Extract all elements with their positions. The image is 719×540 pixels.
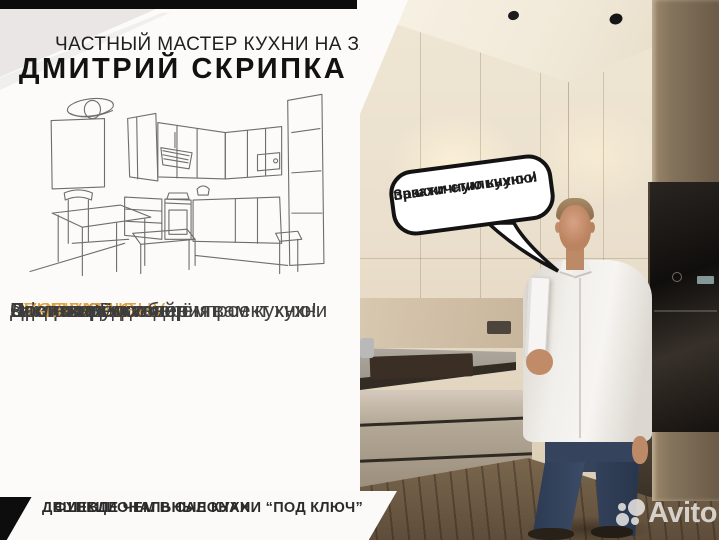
faucet <box>360 338 374 358</box>
avito-wordmark: Avito <box>648 497 717 530</box>
built-in-oven <box>648 182 719 432</box>
kitchen-photo: Закажи стильную и практичную кухню! Avit… <box>360 0 719 540</box>
hand <box>632 436 648 464</box>
kitchen-sketch <box>28 92 335 294</box>
master-name: ДМИТРИЙ СКРИПКА <box>16 53 350 86</box>
footer-line-2: ДЕШЕВЛЕ ЧЕМ В САЛОНАХ <box>42 499 250 518</box>
induction-hob <box>370 353 474 380</box>
top-black-bar <box>0 0 357 9</box>
speech-line: практичную кухню! <box>392 167 538 206</box>
avito-logo-circle <box>616 513 629 526</box>
avito-logo: Avito <box>606 494 719 538</box>
avito-logo-circle <box>618 503 626 511</box>
speech-bubble-tail <box>478 221 564 275</box>
oven-handle <box>654 310 717 312</box>
hand <box>526 349 553 375</box>
shoe <box>528 528 574 540</box>
wall-socket <box>487 321 511 334</box>
speech-bubble-text: Закажи стильную и практичную кухню! <box>392 166 547 186</box>
ad-flyer: ЧАСТНЫЙ МАСТЕР КУХНИ НА ЗАКАЗ ДМИТРИЙ СК… <box>0 0 719 540</box>
cabinet-seam <box>420 28 421 300</box>
oven-display <box>697 276 714 284</box>
oven-dial <box>672 272 682 282</box>
service-text: Доставим и соберём вам кухню! <box>10 294 317 327</box>
avito-logo-circle <box>631 517 639 525</box>
white-sample-panel <box>525 277 550 358</box>
avito-logo-circle <box>628 499 645 516</box>
shirt-placket <box>579 278 581 438</box>
